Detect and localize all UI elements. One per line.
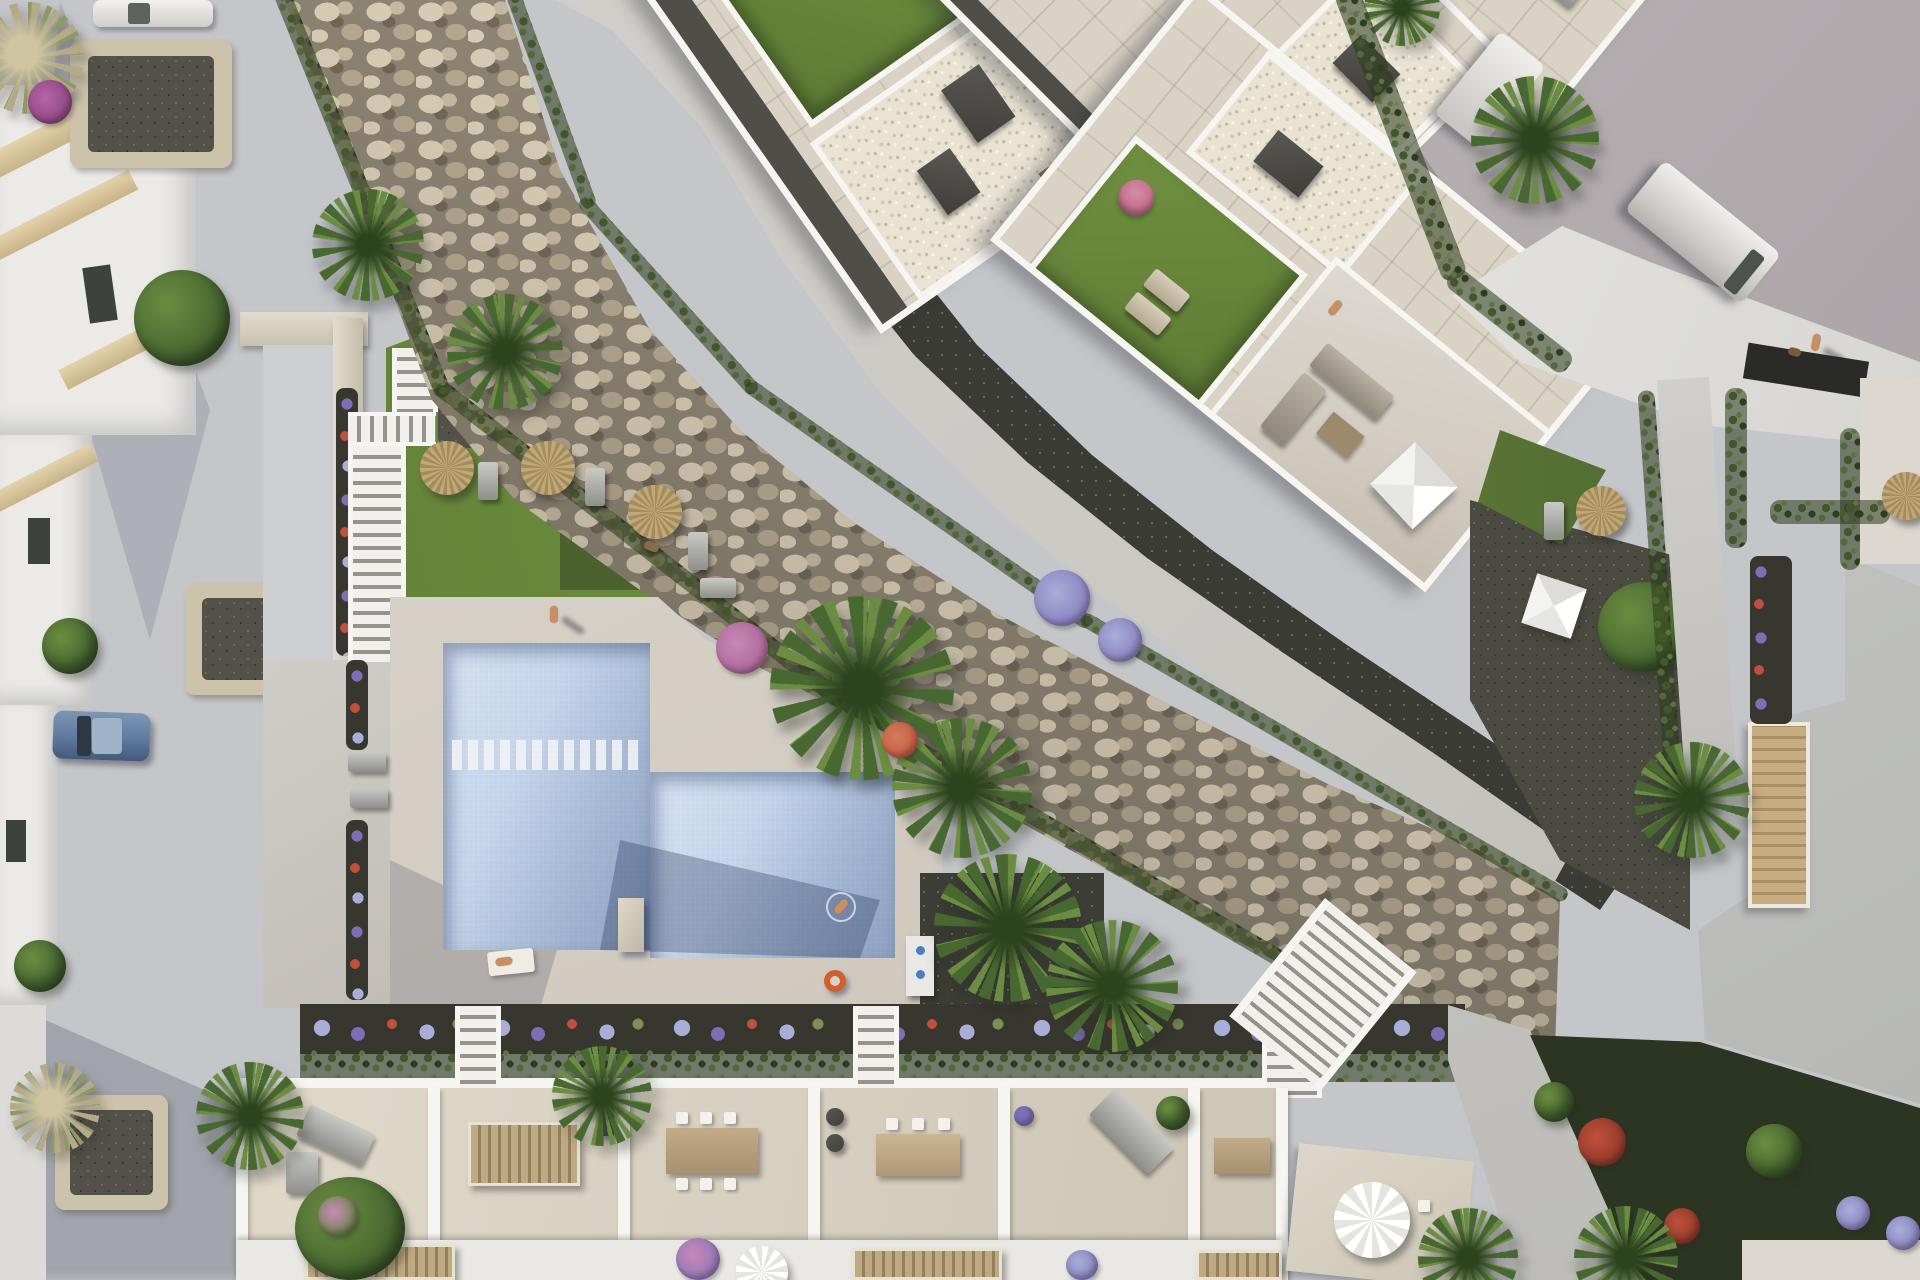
front-flowers	[676, 1238, 720, 1280]
hedge-row	[1770, 500, 1890, 524]
patio-chair	[700, 1178, 712, 1190]
lounger	[350, 788, 388, 808]
straw-parasol	[1576, 486, 1626, 536]
patio-pergola-table	[468, 1122, 580, 1186]
white-car	[93, 0, 213, 27]
pool-shower	[906, 936, 934, 996]
patio-planter	[826, 1134, 844, 1152]
patio-table	[1214, 1138, 1270, 1174]
straw-parasol	[521, 441, 575, 495]
garden-upper-walkway	[263, 345, 333, 675]
lounger	[1544, 502, 1564, 540]
facade-window	[6, 820, 26, 862]
patio-planter	[826, 1108, 844, 1126]
float-ring	[824, 970, 846, 992]
facade-bush	[14, 940, 66, 992]
lounger	[700, 578, 736, 598]
garden-bush	[1534, 1082, 1574, 1122]
red-shrub	[1578, 1118, 1626, 1166]
patio-chair	[912, 1118, 924, 1130]
patio-chair	[724, 1112, 736, 1124]
pool-entry-steps	[452, 740, 642, 770]
facade-window	[28, 518, 50, 564]
patio-flower-pot	[1014, 1106, 1034, 1126]
garden-stairs-mid	[348, 412, 436, 446]
blue-car-windshield	[77, 716, 91, 756]
straw-parasol	[628, 485, 682, 539]
bed-gravel	[88, 56, 214, 152]
purple-shrub	[1886, 1216, 1920, 1250]
lounger	[478, 462, 498, 500]
street-flowers	[28, 80, 72, 124]
hedge-row	[1725, 388, 1747, 548]
terrace-chair	[1418, 1200, 1430, 1212]
patio-chair	[938, 1118, 950, 1130]
pampas-grass	[10, 1063, 100, 1153]
front-pergola-roof	[852, 1248, 1002, 1280]
blue-car-roof	[92, 718, 122, 754]
flower-border	[346, 660, 368, 750]
round-bush	[134, 270, 230, 366]
lounger	[348, 752, 386, 772]
front-flowers	[1066, 1250, 1098, 1280]
front-pergola-roof	[1196, 1250, 1282, 1280]
lounger	[585, 468, 605, 506]
villa-side-terrace	[1860, 378, 1920, 564]
patio-plant	[1156, 1096, 1190, 1130]
flower-mound	[1098, 618, 1142, 662]
flower-mound	[1034, 570, 1090, 626]
shower-head	[916, 946, 925, 955]
garden-steps	[455, 1006, 501, 1092]
garden-walkway-lower	[263, 660, 390, 1008]
pink-tree-bloom	[318, 1196, 358, 1236]
flower-mound	[882, 722, 918, 758]
patio-dining-table	[876, 1134, 960, 1176]
deck-walker	[550, 606, 558, 623]
purple-shrub	[1836, 1196, 1870, 1230]
patio-chair	[700, 1112, 712, 1124]
white-car-windshield	[128, 3, 150, 24]
patio-chair	[724, 1178, 736, 1190]
hedge-row	[1840, 428, 1860, 570]
flower-border	[346, 820, 368, 1000]
patio-chair	[886, 1118, 898, 1130]
pool-diving-block	[618, 898, 644, 952]
patio-dining-table	[666, 1128, 758, 1174]
patio-sofa	[286, 1152, 318, 1194]
garden-steps	[853, 1006, 899, 1092]
aerial-render-scene	[0, 0, 1920, 1280]
flower-mound	[716, 622, 768, 674]
shower-head	[916, 970, 925, 979]
flower-band	[1750, 556, 1792, 724]
patio-chair	[676, 1178, 688, 1190]
patio-chair	[676, 1112, 688, 1124]
timber-deck-ramp	[1748, 722, 1810, 908]
white-parasol	[1334, 1182, 1410, 1258]
garden-bush	[1746, 1124, 1802, 1178]
lounger	[688, 532, 708, 570]
straw-parasol	[420, 441, 474, 495]
facade-bush	[42, 618, 98, 674]
